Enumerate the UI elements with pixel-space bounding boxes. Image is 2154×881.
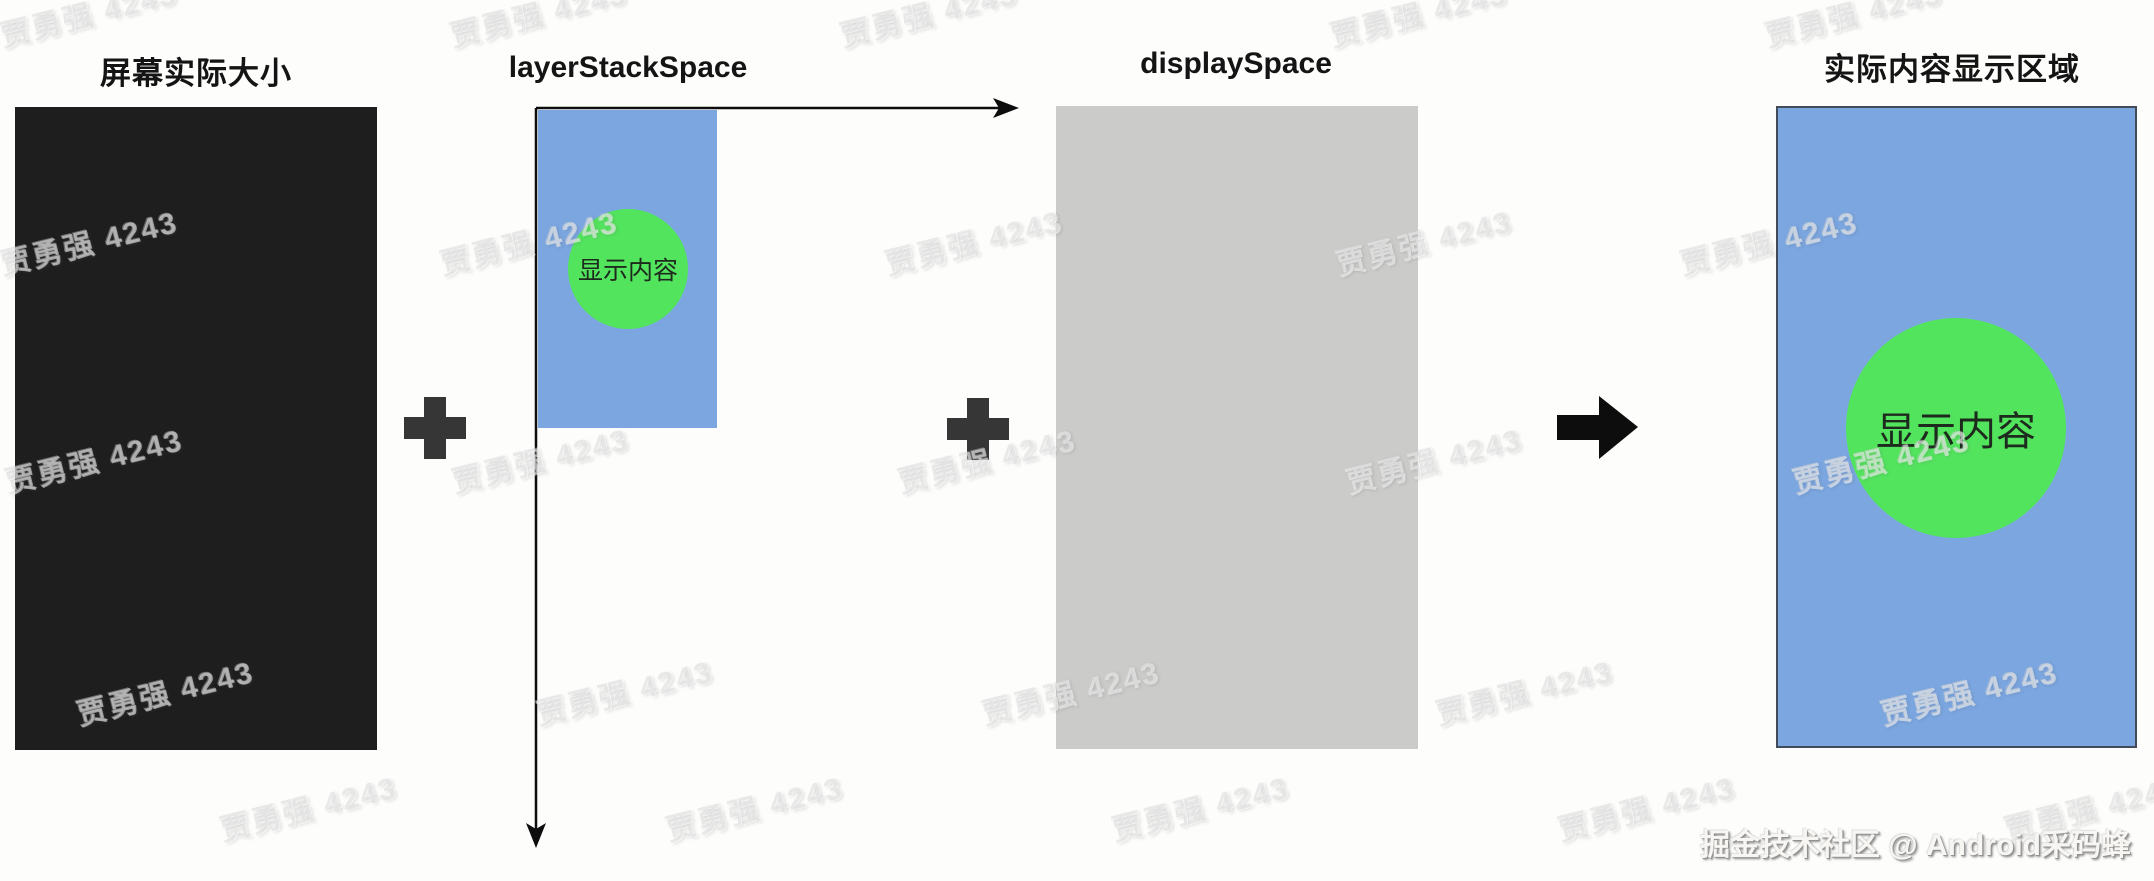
watermark-text: 贾勇强 4243: [1107, 763, 1293, 849]
content-circle-large: 显示内容: [1846, 318, 2066, 538]
screen-size-title: 屏幕实际大小: [100, 48, 292, 93]
arrow-right-icon: [1557, 396, 1638, 459]
watermark-text: 贾勇强 4243: [880, 197, 1066, 283]
axis-arrow-down-head-icon: [526, 823, 546, 848]
screen-rect: [15, 107, 377, 750]
watermark-text: 贾勇强 4243: [445, 0, 631, 55]
plus-icon: [404, 397, 466, 459]
watermark-text: 贾勇强 4243: [215, 763, 401, 849]
watermark-text: 贾勇强 4243: [661, 763, 847, 849]
watermark-text: 贾勇强 4243: [1431, 647, 1617, 733]
axis-arrow-right-head-icon: [993, 98, 1019, 118]
diagram-canvas: 屏幕实际大小 layerStackSpace displaySpace 实际内容…: [0, 0, 2154, 881]
display-space-title: displaySpace: [1140, 47, 1332, 81]
layer-stack-space-title: layerStackSpace: [509, 51, 748, 85]
watermark-text: 贾勇强 4243: [1325, 0, 1511, 55]
plus-icon: [947, 398, 1009, 460]
content-label-large: 显示内容: [1876, 399, 2036, 457]
credit-text: 掘金技术社区 @ Android采码蜂: [1700, 820, 2131, 864]
content-label-small: 显示内容: [578, 251, 678, 287]
result-area-title: 实际内容显示区域: [1824, 44, 2080, 89]
watermark-text: 贾勇强 4243: [835, 0, 1021, 55]
display-rect: [1056, 106, 1418, 749]
content-circle-small: 显示内容: [568, 209, 688, 329]
watermark-text: 贾勇强 4243: [531, 647, 717, 733]
